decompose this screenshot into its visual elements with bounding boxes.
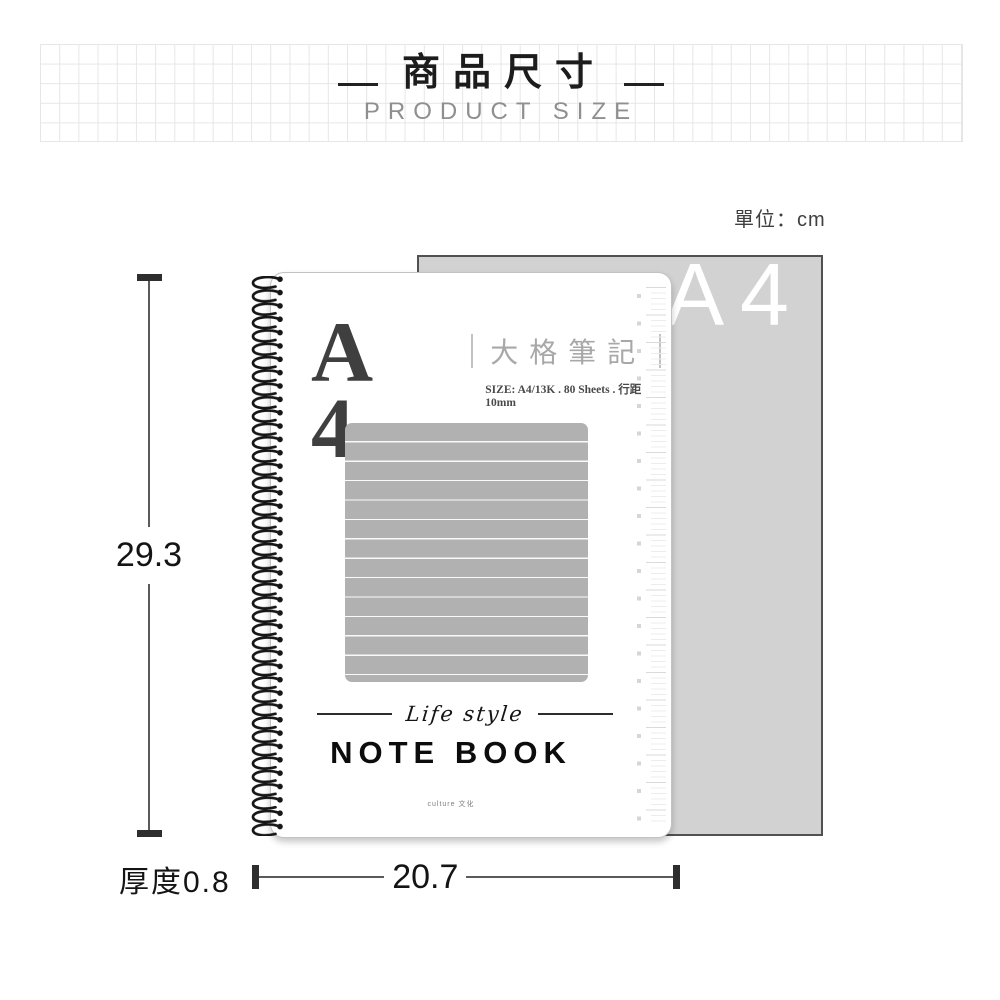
page-title: 商品尺寸	[396, 53, 606, 95]
ruler-strip	[637, 287, 666, 823]
height-dim-top-cap	[137, 274, 162, 281]
width-dim-right-cap	[673, 865, 680, 889]
height-dim-bottom-cap	[137, 830, 162, 837]
divider-line-left	[317, 713, 392, 715]
height-dim-line-lower	[148, 584, 150, 830]
page-root: 商品尺寸 PRODUCT SIZE 單位：cm A4 A 4 大格	[0, 0, 1000, 1000]
thickness-label: 厚度0.8	[119, 857, 231, 901]
script-divider: Life style	[317, 702, 613, 726]
height-dimension: 29.3	[117, 274, 181, 837]
page-subtitle: PRODUCT SIZE	[364, 98, 638, 126]
header-grid-band: 商品尺寸 PRODUCT SIZE	[40, 44, 963, 142]
title-bar-left	[471, 334, 473, 368]
width-dim-line-right	[466, 876, 673, 878]
width-dimension: 20.7	[252, 864, 680, 890]
product-name: NOTE BOOK	[271, 735, 631, 771]
script-text: Life style	[405, 702, 525, 726]
a4-sheet-label: A4	[665, 251, 805, 339]
header-title-row: 商品尺寸	[338, 53, 664, 95]
title-dash-right	[624, 83, 664, 86]
width-dim-line-left	[259, 876, 384, 878]
width-dim-left-cap	[252, 865, 259, 889]
width-dim-label: 20.7	[392, 858, 458, 897]
brand-mark: culture 文化	[271, 799, 631, 809]
ruled-grid-block	[345, 423, 588, 682]
divider-line-right	[538, 713, 613, 715]
unit-note: 單位：cm	[734, 203, 826, 232]
height-dim-label: 29.3	[116, 536, 182, 575]
notebook-cover: A 4 大格筆記 SIZE: A4/13K . 80 Sheets . 行距10…	[270, 272, 672, 838]
cover-title: 大格筆記	[486, 331, 646, 371]
title-dash-left	[338, 83, 378, 86]
height-dim-line-upper	[148, 281, 150, 527]
